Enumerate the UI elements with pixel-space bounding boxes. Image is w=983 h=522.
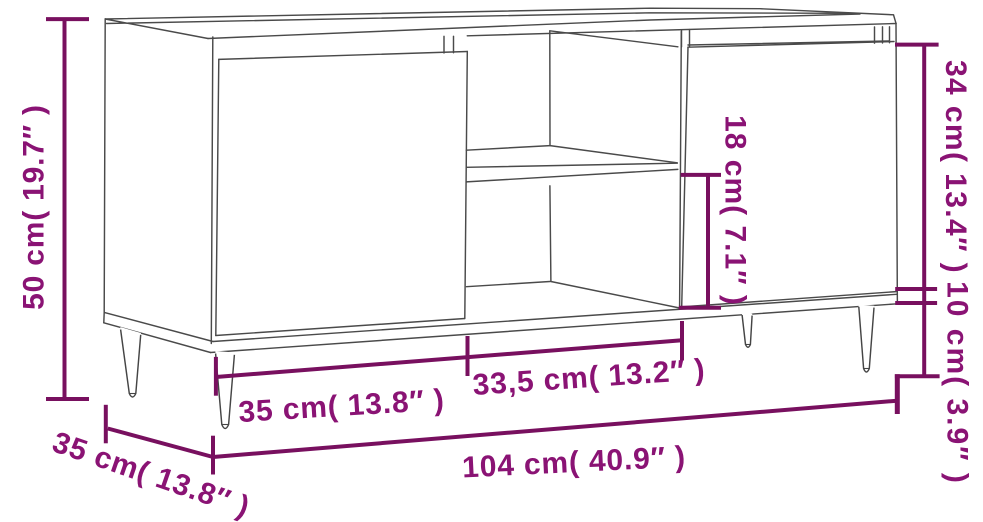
svg-text:34 cm( 13.4″ ): 34 cm( 13.4″ ) xyxy=(939,60,972,274)
svg-text:18 cm( 7.1″ ): 18 cm( 7.1″ ) xyxy=(719,115,752,306)
svg-text:50 cm( 19.7″ ): 50 cm( 19.7″ ) xyxy=(18,104,51,310)
svg-text:10 cm( 3.9″ ): 10 cm( 3.9″ ) xyxy=(941,281,974,485)
